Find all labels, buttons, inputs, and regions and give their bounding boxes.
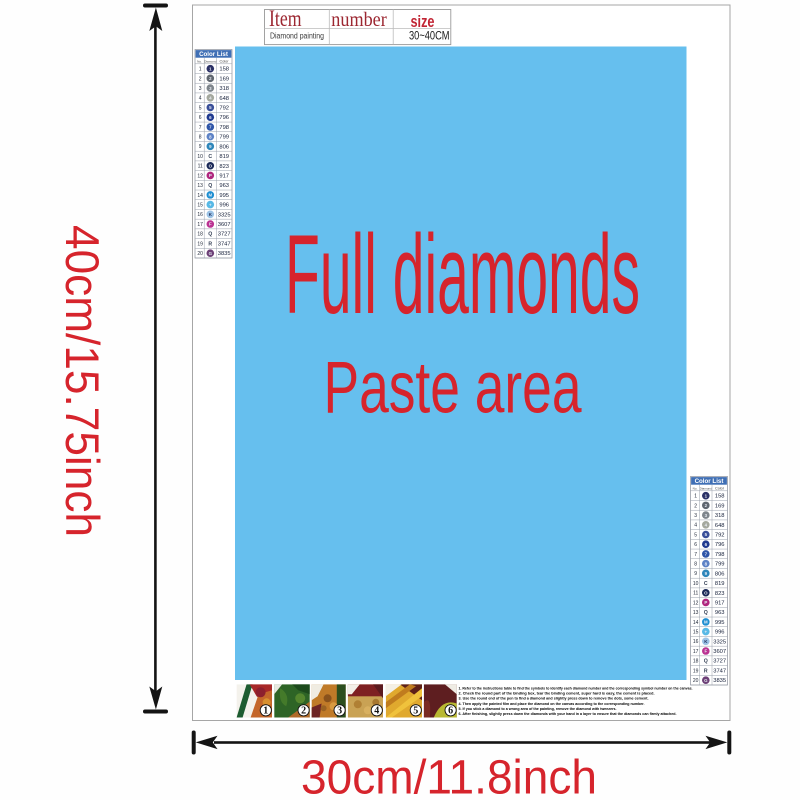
svg-text:996: 996	[219, 203, 229, 209]
svg-text:Color List: Color List	[199, 51, 228, 58]
svg-text:P: P	[704, 600, 707, 605]
svg-text:823: 823	[715, 591, 725, 597]
svg-text:Q: Q	[704, 659, 708, 665]
svg-text:1. Refer to the instructions t: 1. Refer to the instructions table to fi…	[459, 686, 693, 690]
svg-text:C: C	[704, 581, 708, 587]
svg-text:318: 318	[219, 86, 229, 92]
svg-text:3. Use the round end of the pe: 3. Use the round end of the pen to find …	[459, 697, 649, 701]
svg-text:+: +	[209, 202, 212, 207]
svg-text:3835: 3835	[713, 678, 726, 684]
svg-text:3: 3	[694, 513, 697, 519]
svg-text:4: 4	[199, 96, 202, 102]
svg-text:30cm/11.8inch: 30cm/11.8inch	[301, 752, 597, 800]
svg-text:+: +	[705, 629, 708, 634]
svg-text:3325: 3325	[218, 212, 231, 218]
svg-text:798: 798	[219, 125, 229, 131]
svg-text:R: R	[704, 668, 708, 674]
svg-text:996: 996	[715, 630, 725, 636]
svg-text:917: 917	[715, 600, 725, 606]
svg-text:3607: 3607	[218, 222, 231, 228]
svg-text:13: 13	[197, 183, 203, 189]
svg-text:17: 17	[693, 649, 699, 655]
svg-text:14: 14	[197, 193, 203, 199]
svg-text:6: 6	[448, 706, 453, 717]
svg-text:12: 12	[197, 173, 203, 179]
svg-text:16: 16	[693, 639, 699, 645]
svg-text:18: 18	[197, 232, 203, 238]
svg-text:963: 963	[715, 610, 725, 616]
svg-text:6: 6	[694, 542, 697, 548]
svg-text:2: 2	[199, 76, 202, 82]
svg-text:7: 7	[694, 552, 697, 558]
svg-text:P: P	[209, 173, 212, 178]
svg-text:792: 792	[715, 533, 725, 539]
svg-text:6. After finishing, slightly p: 6. After finishing, slightly press down …	[459, 712, 677, 716]
svg-text:648: 648	[715, 523, 725, 529]
svg-text:Item: Item	[269, 6, 302, 31]
svg-text:3: 3	[337, 706, 342, 717]
svg-text:Diamond: Diamond	[700, 486, 713, 490]
svg-text:10: 10	[693, 581, 699, 587]
svg-text:R: R	[208, 241, 212, 247]
svg-text:Full diamonds: Full diamonds	[285, 212, 640, 337]
svg-text:15: 15	[693, 630, 699, 636]
svg-text:796: 796	[715, 542, 725, 548]
svg-text:C: C	[208, 154, 212, 160]
svg-text:169: 169	[715, 503, 725, 509]
svg-text:792: 792	[219, 105, 229, 111]
svg-text:963: 963	[219, 183, 229, 189]
svg-text:1: 1	[694, 494, 697, 500]
svg-text:9: 9	[199, 144, 202, 150]
svg-text:Q: Q	[208, 232, 212, 238]
svg-text:No.: No.	[693, 486, 698, 490]
svg-text:14: 14	[693, 620, 699, 626]
svg-text:3727: 3727	[713, 659, 726, 665]
svg-text:F: F	[209, 222, 212, 227]
svg-text:799: 799	[219, 135, 229, 141]
svg-text:16: 16	[197, 212, 203, 218]
svg-text:799: 799	[715, 562, 725, 568]
svg-text:10: 10	[197, 154, 203, 160]
svg-text:11: 11	[693, 591, 698, 597]
svg-text:G: G	[704, 678, 708, 683]
svg-text:3727: 3727	[218, 232, 231, 238]
svg-text:O: O	[704, 590, 708, 595]
svg-text:158: 158	[219, 67, 229, 73]
svg-text:G: G	[209, 251, 213, 256]
svg-text:Color: Color	[715, 487, 725, 491]
svg-text:3835: 3835	[218, 251, 231, 257]
svg-text:20: 20	[693, 678, 699, 684]
svg-text:3747: 3747	[218, 241, 231, 247]
svg-text:819: 819	[219, 154, 229, 160]
svg-text:number: number	[331, 9, 387, 31]
svg-text:19: 19	[693, 668, 699, 674]
svg-text:7: 7	[199, 125, 202, 131]
svg-text:4: 4	[694, 523, 697, 529]
svg-text:5: 5	[694, 532, 697, 538]
svg-text:Paste area: Paste area	[324, 347, 582, 428]
svg-text:648: 648	[219, 96, 229, 102]
svg-text:169: 169	[219, 76, 229, 82]
svg-text:917: 917	[219, 173, 229, 179]
svg-text:15: 15	[197, 203, 203, 209]
svg-text:1: 1	[199, 67, 202, 73]
svg-text:5: 5	[199, 105, 202, 111]
svg-text:11: 11	[198, 164, 203, 170]
svg-text:6: 6	[199, 115, 202, 121]
svg-text:2. Check the round part of the: 2. Check the round part of the binding b…	[459, 691, 655, 695]
svg-text:Diamond painting: Diamond painting	[270, 31, 324, 40]
svg-text:30~40CM: 30~40CM	[409, 31, 450, 43]
svg-text:9: 9	[694, 571, 697, 577]
svg-text:5. If you stick a diamond to a: 5. If you stick a diamond to a wrong are…	[459, 707, 617, 711]
svg-text:O: O	[209, 163, 213, 168]
svg-text:Q: Q	[208, 183, 212, 189]
svg-text:3747: 3747	[713, 668, 726, 674]
svg-text:819: 819	[715, 581, 725, 587]
svg-text:318: 318	[715, 513, 725, 519]
svg-text:995: 995	[219, 193, 229, 199]
svg-text:5: 5	[413, 706, 418, 717]
svg-text:M: M	[208, 193, 212, 198]
svg-text:Q: Q	[704, 610, 708, 616]
svg-text:size: size	[411, 12, 435, 31]
svg-text:17: 17	[197, 222, 203, 228]
svg-text:19: 19	[197, 241, 203, 247]
svg-text:M: M	[704, 620, 708, 625]
svg-text:1: 1	[263, 706, 268, 717]
svg-text:3607: 3607	[713, 649, 726, 655]
svg-text:12: 12	[693, 600, 699, 606]
svg-text:806: 806	[219, 144, 229, 150]
svg-text:798: 798	[715, 552, 725, 558]
svg-text:Color: Color	[219, 60, 229, 64]
svg-text:No.: No.	[197, 59, 202, 63]
svg-text:796: 796	[219, 115, 229, 121]
svg-text:2: 2	[694, 503, 697, 509]
svg-text:158: 158	[715, 494, 725, 500]
svg-text:823: 823	[219, 164, 229, 170]
svg-text:18: 18	[693, 659, 699, 665]
svg-text:Color List: Color List	[695, 478, 724, 485]
svg-text:13: 13	[693, 610, 699, 616]
svg-text:F: F	[704, 649, 707, 654]
svg-text:995: 995	[715, 620, 725, 626]
svg-text:8: 8	[199, 135, 202, 141]
svg-text:2: 2	[301, 706, 306, 717]
svg-text:3: 3	[199, 86, 202, 92]
svg-text:4. Then apply the painted film: 4. Then apply the painted film and place…	[459, 702, 645, 706]
svg-text:20: 20	[197, 251, 203, 257]
svg-text:40cm/15.75inch: 40cm/15.75inch	[56, 225, 109, 537]
svg-text:4: 4	[374, 706, 379, 717]
svg-text:Diamond: Diamond	[204, 59, 217, 63]
svg-text:8: 8	[694, 562, 697, 568]
svg-text:3325: 3325	[713, 639, 726, 645]
svg-text:806: 806	[715, 571, 725, 577]
